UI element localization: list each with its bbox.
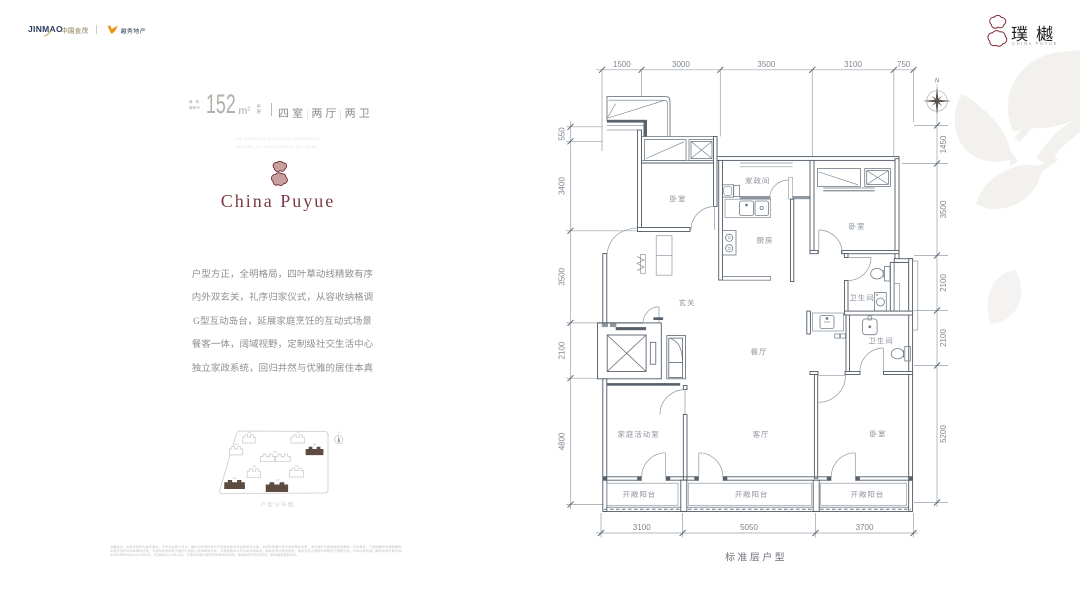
svg-text:开敞阳台: 开敞阳台 xyxy=(851,490,885,499)
svg-text:1500: 1500 xyxy=(613,60,631,69)
svg-text:3000: 3000 xyxy=(672,60,690,69)
svg-text:2100: 2100 xyxy=(939,274,948,292)
svg-text:750: 750 xyxy=(897,60,911,69)
svg-text:开敞阳台: 开敞阳台 xyxy=(623,490,657,499)
svg-text:3100: 3100 xyxy=(633,523,651,532)
svg-text:5200: 5200 xyxy=(939,425,948,443)
svg-text:2100: 2100 xyxy=(558,341,567,359)
svg-text:3500: 3500 xyxy=(757,60,775,69)
svg-text:卧室: 卧室 xyxy=(870,430,887,439)
svg-text:餐厅: 餐厅 xyxy=(751,348,768,357)
svg-text:玄关: 玄关 xyxy=(679,299,696,308)
svg-text:3100: 3100 xyxy=(844,60,862,69)
svg-text:3400: 3400 xyxy=(558,177,567,195)
svg-text:卧室: 卧室 xyxy=(670,195,687,204)
svg-text:卫生间: 卫生间 xyxy=(849,294,874,303)
svg-text:1450: 1450 xyxy=(939,135,948,153)
svg-text:卧室: 卧室 xyxy=(849,222,866,231)
svg-text:卫生间: 卫生间 xyxy=(868,337,893,346)
svg-text:开敞阳台: 开敞阳台 xyxy=(735,490,769,499)
svg-text:标准层户型: 标准层户型 xyxy=(725,552,787,564)
svg-text:厨房: 厨房 xyxy=(757,236,774,245)
svg-text:家政间: 家政间 xyxy=(745,177,770,186)
svg-text:家庭活动室: 家庭活动室 xyxy=(618,430,660,439)
svg-text:5050: 5050 xyxy=(740,523,758,532)
svg-text:3500: 3500 xyxy=(558,267,567,285)
svg-text:3500: 3500 xyxy=(939,200,948,218)
svg-text:2100: 2100 xyxy=(939,329,948,347)
svg-text:客厅: 客厅 xyxy=(753,430,770,439)
svg-text:N: N xyxy=(935,79,940,85)
svg-text:4800: 4800 xyxy=(558,432,567,450)
svg-text:550: 550 xyxy=(558,127,567,141)
svg-text:3700: 3700 xyxy=(856,523,874,532)
